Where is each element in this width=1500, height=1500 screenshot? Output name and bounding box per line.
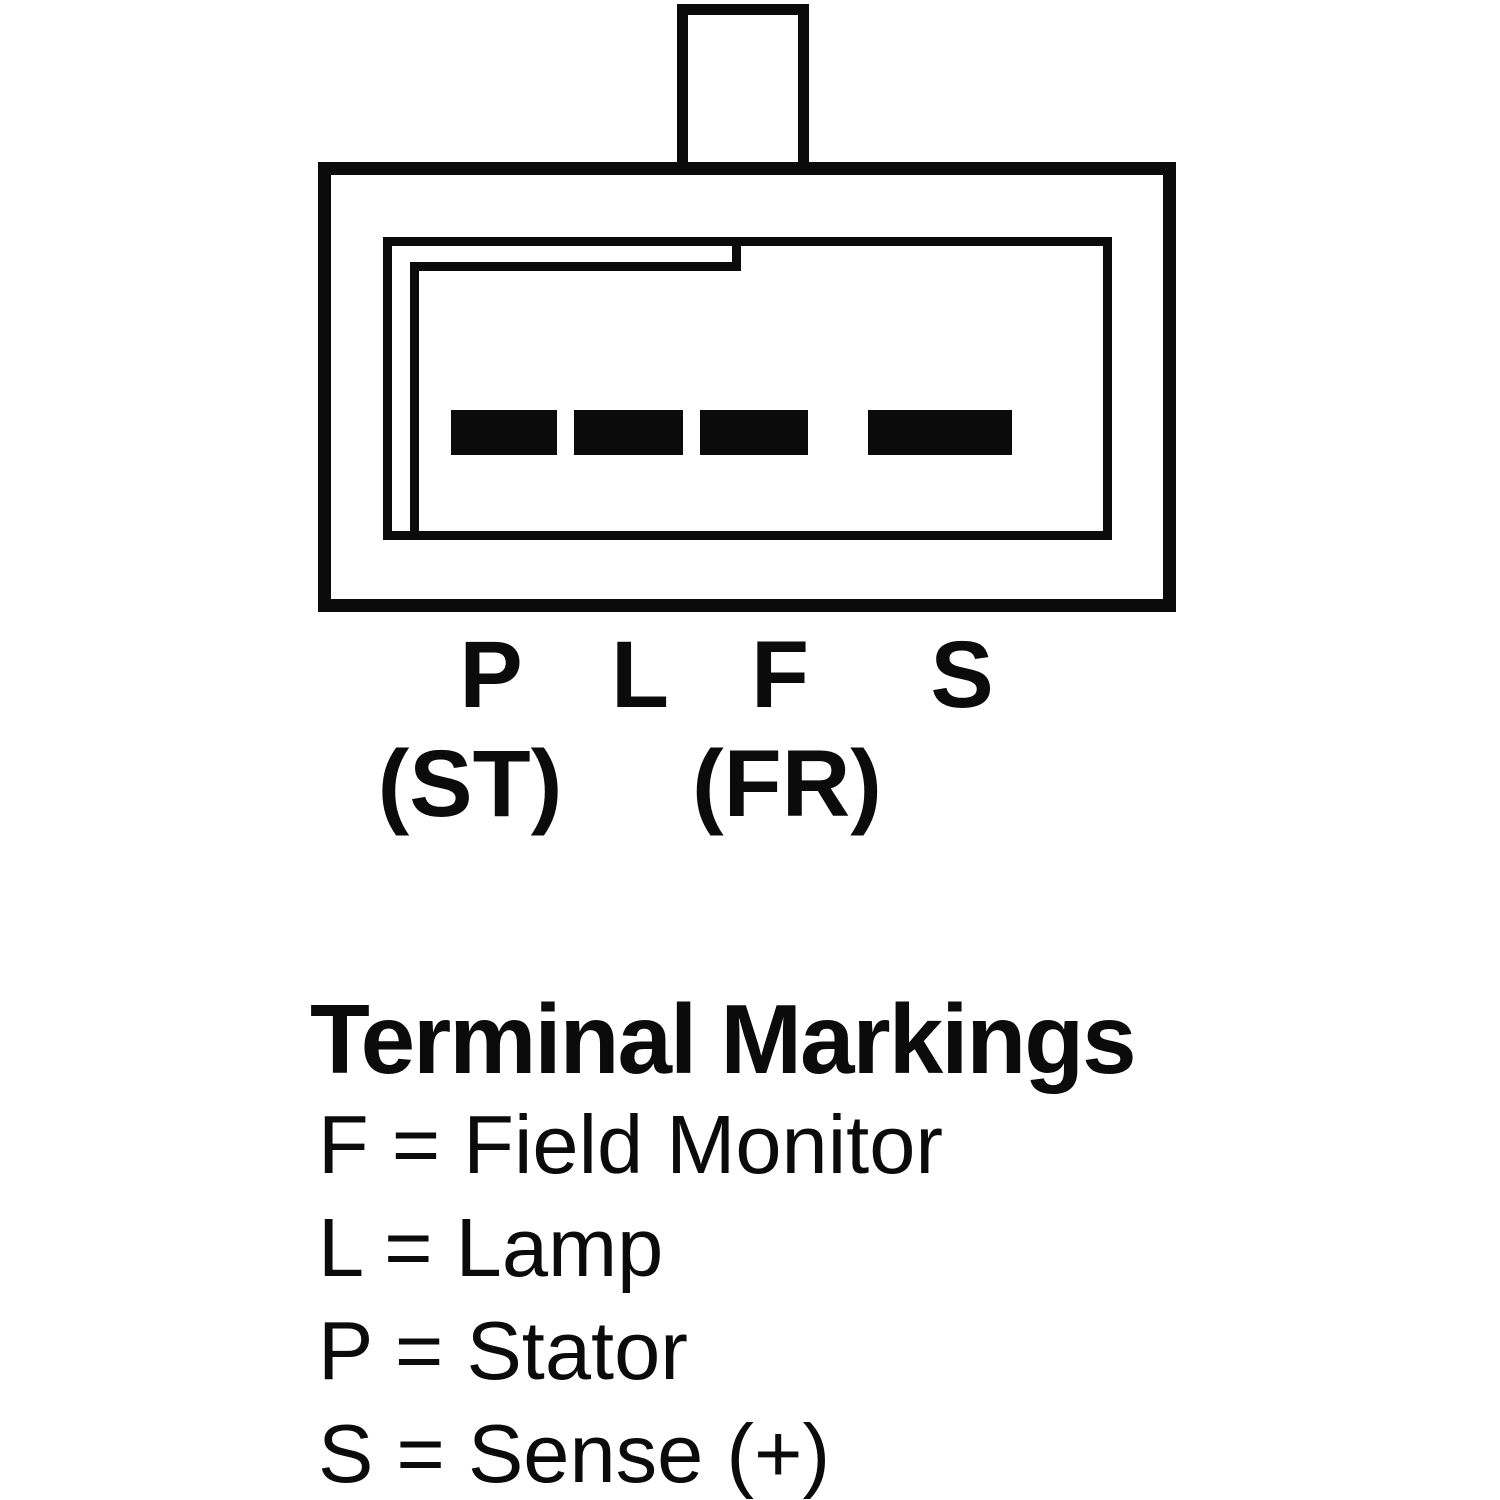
connector-keyway-step [732,245,741,271]
legend-entry-field-monitor: F = Field Monitor [318,1103,943,1186]
pin-label-s: S [930,628,993,723]
legend-title: Terminal Markings [310,990,1135,1088]
terminal-slot-s [868,410,1012,455]
pin-label-f: F [751,628,809,723]
terminal-slot-f [700,410,808,455]
connector-top-tab [677,4,809,164]
pin-label-l: L [611,628,669,723]
legend-entry-lamp: L = Lamp [318,1206,663,1289]
legend-entry-sense: S = Sense (+) [318,1412,830,1495]
alt-label-fr: (FR) [692,737,882,832]
alternator-connector-pinout-diagram: P L F S (ST) (FR) Terminal Markings F = … [0,0,1500,1500]
connector-keyway-horizontal [410,262,741,271]
terminal-slot-l [574,410,683,455]
terminal-slot-p [451,410,557,455]
pin-label-p: P [459,628,522,723]
alt-label-st: (ST) [378,737,563,832]
connector-inner-housing [383,237,1112,540]
connector-keyway-vertical [410,262,419,531]
legend-entry-stator: P = Stator [318,1309,688,1392]
